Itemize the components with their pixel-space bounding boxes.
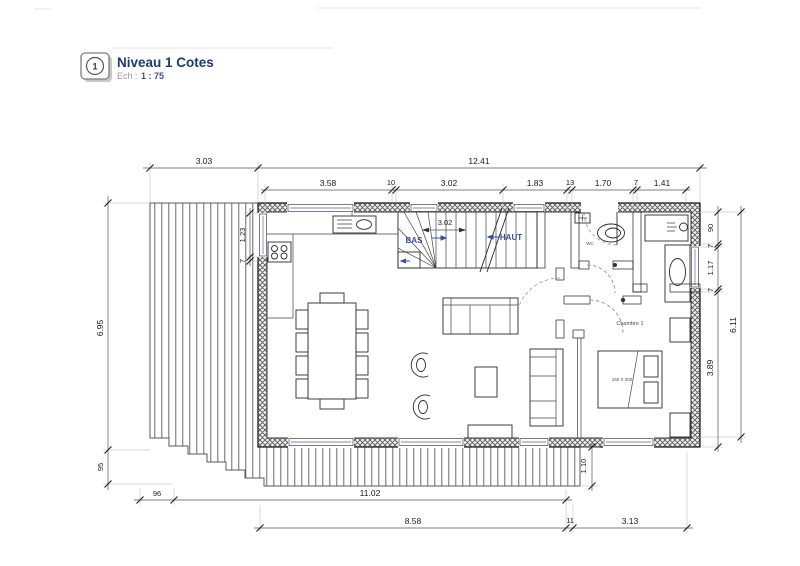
stairs-down-label: BAS: [406, 236, 424, 245]
chair: [320, 293, 344, 303]
dim-label: 7: [634, 178, 638, 187]
dim-label: 1.70: [595, 178, 612, 188]
cooktop: [268, 242, 291, 262]
dining-set: [296, 293, 368, 409]
chair: [296, 356, 308, 375]
nightstand: [670, 318, 690, 342]
dim-label: 6.11: [728, 317, 738, 333]
dim-label: 1.10: [579, 459, 588, 474]
dim-label: 90: [706, 224, 715, 232]
window-top-kitchen: [287, 202, 354, 214]
dim-label: 11.02: [360, 488, 381, 498]
wc-door-pivot: [613, 263, 617, 267]
bedroom-label: Chambre 1: [616, 321, 643, 327]
scale-value: 1 : 75: [141, 71, 164, 81]
floor-plan-page: 1 Niveau 1 Cotes Ech : 1 : 75: [0, 0, 800, 566]
kitchen-sink-unit: [333, 216, 376, 233]
dim-label: 3.58: [320, 178, 337, 188]
window-bottom-2: [398, 436, 464, 448]
chair: [356, 356, 368, 375]
bedroom-door-pivot: [621, 298, 625, 302]
wc-label: WC: [586, 241, 594, 246]
drawing-title: Niveau 1 Cotes: [117, 55, 214, 70]
dim-label: 96: [153, 489, 161, 498]
tv-stand: [468, 425, 512, 438]
drawing-marker-button[interactable]: 1: [81, 53, 112, 82]
dim-label: 3.13: [622, 516, 639, 526]
window-right-bathroom: [689, 246, 701, 288]
chair: [356, 379, 368, 398]
chair: [320, 399, 344, 409]
scale-label: Ech :: [117, 71, 138, 81]
dim-label: 1.41: [654, 178, 671, 188]
dim-label: 1.83: [527, 178, 544, 188]
sofa-top: [443, 298, 518, 334]
dim-label: 12.41: [468, 156, 490, 166]
dim-label: 7: [706, 288, 715, 292]
dim-label: 7: [706, 244, 715, 248]
chair: [296, 333, 308, 352]
dim-label: 10: [387, 178, 395, 187]
window-bottom-bedroom: [603, 436, 654, 448]
dim-label: 6.95: [95, 319, 105, 336]
window-bottom-1: [288, 436, 354, 448]
chair: [296, 379, 308, 398]
chair: [296, 310, 308, 329]
dim-label: 3.03: [196, 156, 213, 166]
bed-size-label: 160 X 200: [612, 377, 633, 382]
window-bottom-3: [519, 436, 549, 448]
dim-label: 7: [238, 259, 247, 263]
floor-plan-drawing: 1 Niveau 1 Cotes Ech : 1 : 75: [0, 0, 800, 566]
stair-width-label: 3.02: [438, 218, 453, 227]
window-left-kitchen: [257, 213, 269, 257]
bed: 160 X 200: [598, 351, 662, 408]
dim-label: 3.02: [441, 178, 458, 188]
stairs-up-label: HAUT: [500, 233, 522, 242]
nightstand: [670, 413, 690, 437]
dim-label: 13: [566, 178, 574, 187]
dim-label: 3.89: [705, 359, 715, 376]
title-block: 1 Niveau 1 Cotes Ech : 1 : 75: [81, 53, 214, 82]
chair: [356, 333, 368, 352]
dim-label: 95: [96, 463, 105, 471]
dining-table: [308, 303, 356, 399]
dim-label: 11: [566, 516, 574, 525]
sofa-right: [530, 349, 563, 426]
chair: [356, 310, 368, 329]
coffee-table: [475, 367, 497, 397]
drawing-number: 1: [92, 62, 97, 72]
dimensions-right: 90 7 1.17 7 3.89 6.11: [700, 206, 746, 452]
dim-label: 1.23: [238, 228, 247, 243]
dim-label: 1.17: [706, 261, 715, 276]
page-artifact-lines: [34, 8, 700, 48]
dim-label: 8.58: [405, 516, 422, 526]
